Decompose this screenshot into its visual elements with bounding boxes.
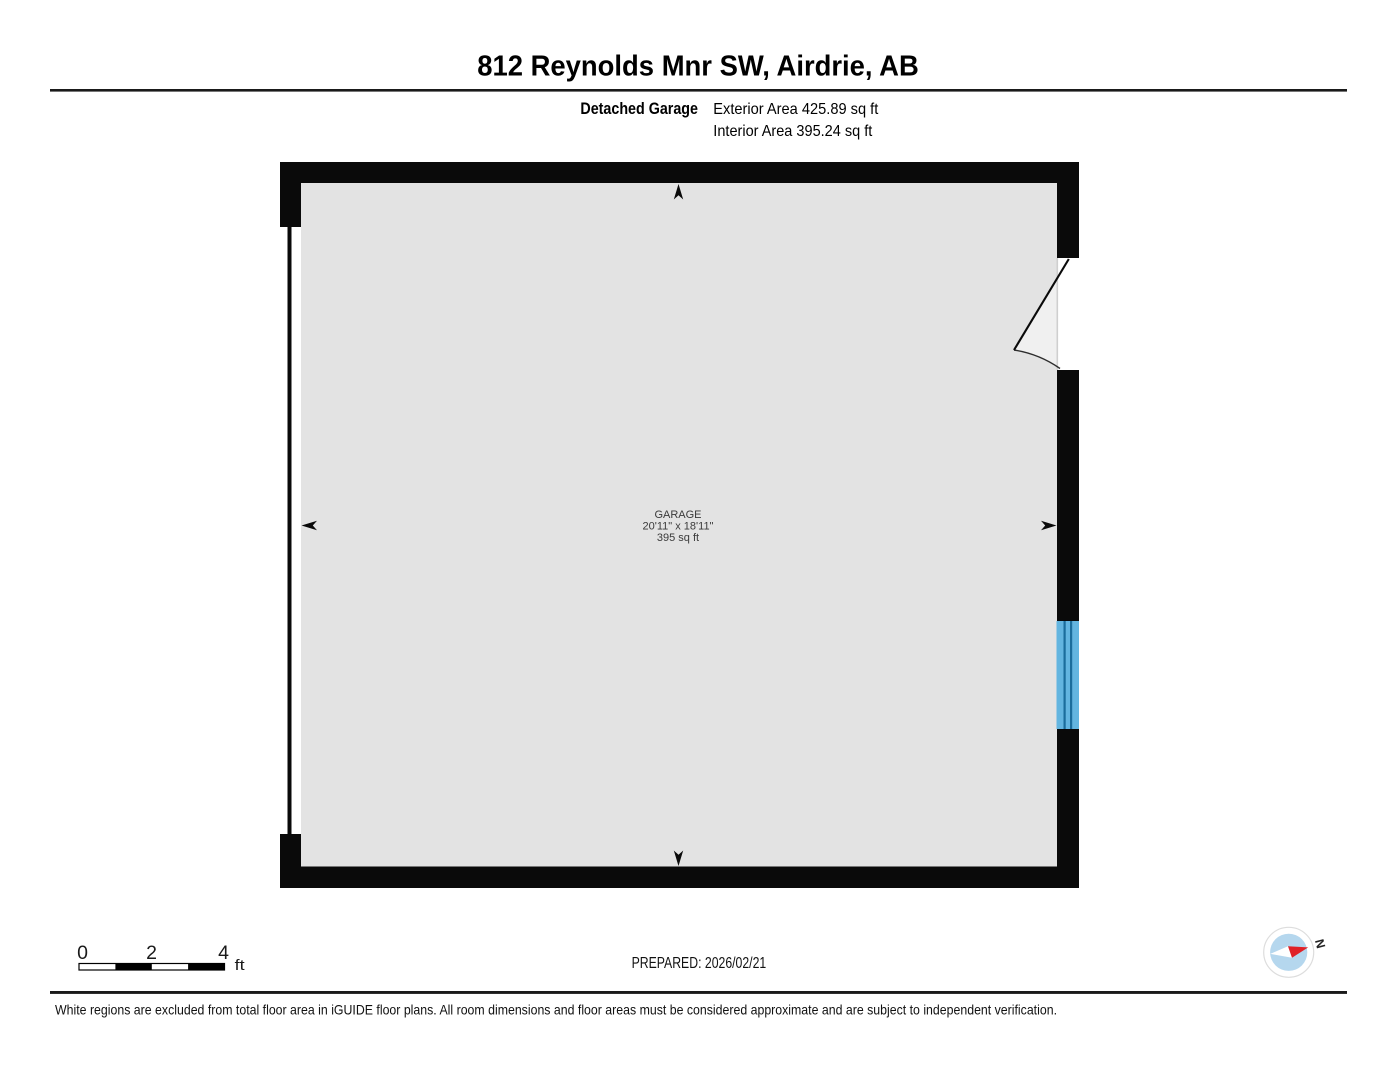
svg-text:20'11" x 18'11": 20'11" x 18'11" [643,521,714,533]
svg-text:Interior Area 395.24 sq ft: Interior Area 395.24 sq ft [713,123,873,140]
svg-text:395 sq ft: 395 sq ft [657,532,699,544]
svg-text:ft: ft [235,957,246,974]
svg-text:Detached Garage: Detached Garage [580,100,698,118]
svg-text:Exterior Area 425.89 sq ft: Exterior Area 425.89 sq ft [713,101,879,118]
svg-text:812 Reynolds Mnr SW, Airdrie,: 812 Reynolds Mnr SW, Airdrie, AB [477,51,919,83]
svg-text:0: 0 [77,942,88,964]
svg-text:PREPARED: 2026/02/21: PREPARED: 2026/02/21 [632,955,767,972]
svg-text:GARAGE: GARAGE [654,509,701,521]
svg-text:White regions are excluded fro: White regions are excluded from total fl… [55,1003,1057,1018]
svg-text:2: 2 [146,942,157,964]
svg-text:4: 4 [218,942,229,964]
